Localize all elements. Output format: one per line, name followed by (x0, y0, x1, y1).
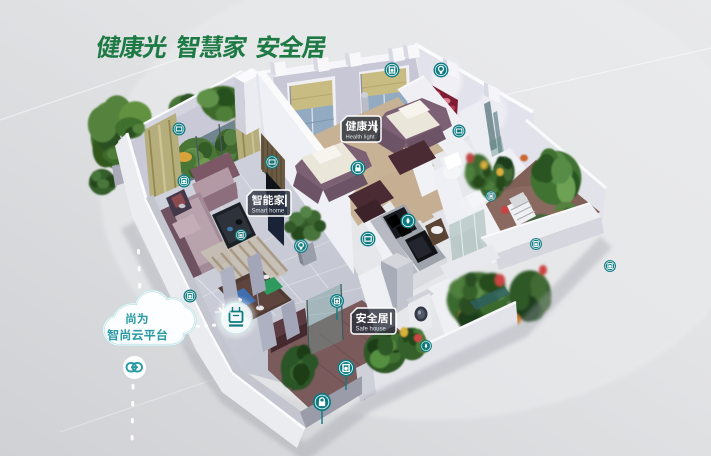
svg-text:Smart home: Smart home (252, 209, 285, 215)
svg-text:Health light: Health light (346, 135, 375, 141)
svg-text:Safe house: Safe house (356, 327, 387, 333)
